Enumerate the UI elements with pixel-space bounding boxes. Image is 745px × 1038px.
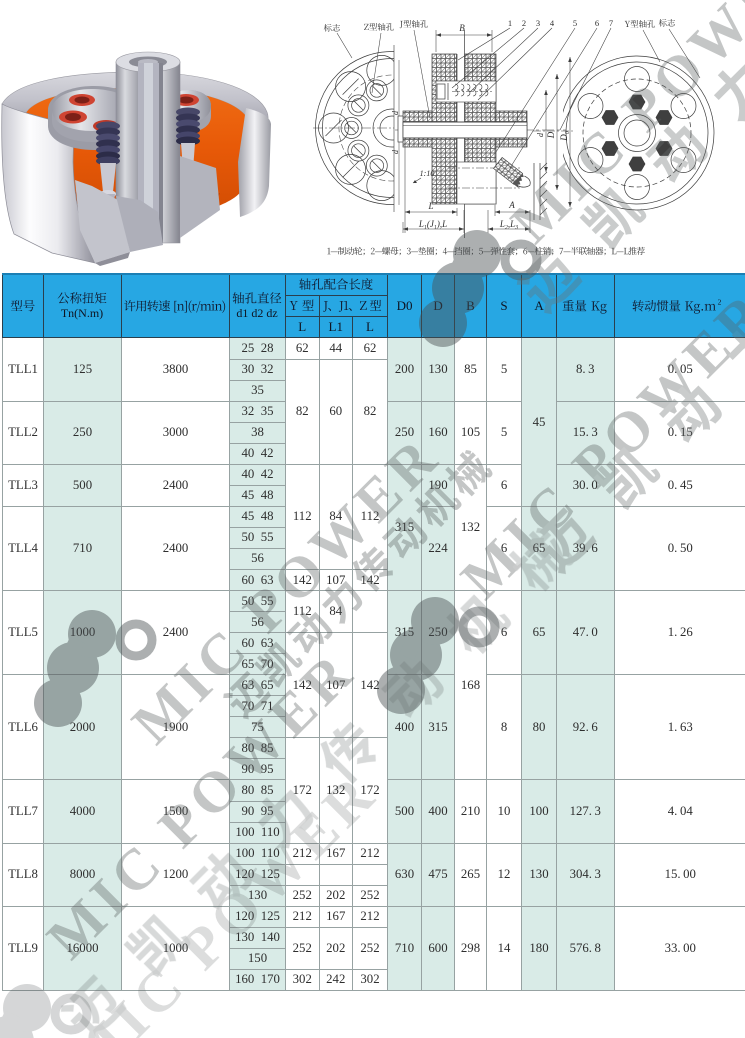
svg-text:7: 7 (609, 18, 613, 28)
svg-text:B: B (459, 23, 465, 33)
svg-text:L1(J1),L: L1(J1),L (418, 219, 447, 231)
svg-text:L: L (427, 201, 433, 211)
svg-text:1: 1 (508, 18, 512, 28)
svg-text:3: 3 (536, 18, 540, 28)
svg-text:1:10: 1:10 (420, 169, 435, 178)
svg-text:4: 4 (550, 18, 555, 28)
svg-text:d: d (391, 110, 400, 115)
svg-text:d: d (536, 132, 545, 137)
svg-text:D: D (546, 131, 556, 139)
svg-text:L2,L3: L2,L3 (499, 219, 518, 231)
svg-text:D0: D0 (559, 131, 571, 142)
svg-text:d: d (391, 149, 400, 154)
svg-text:2: 2 (522, 18, 526, 28)
svg-text:6: 6 (595, 18, 599, 28)
svg-text:5: 5 (573, 18, 577, 28)
svg-text:A: A (508, 200, 515, 210)
